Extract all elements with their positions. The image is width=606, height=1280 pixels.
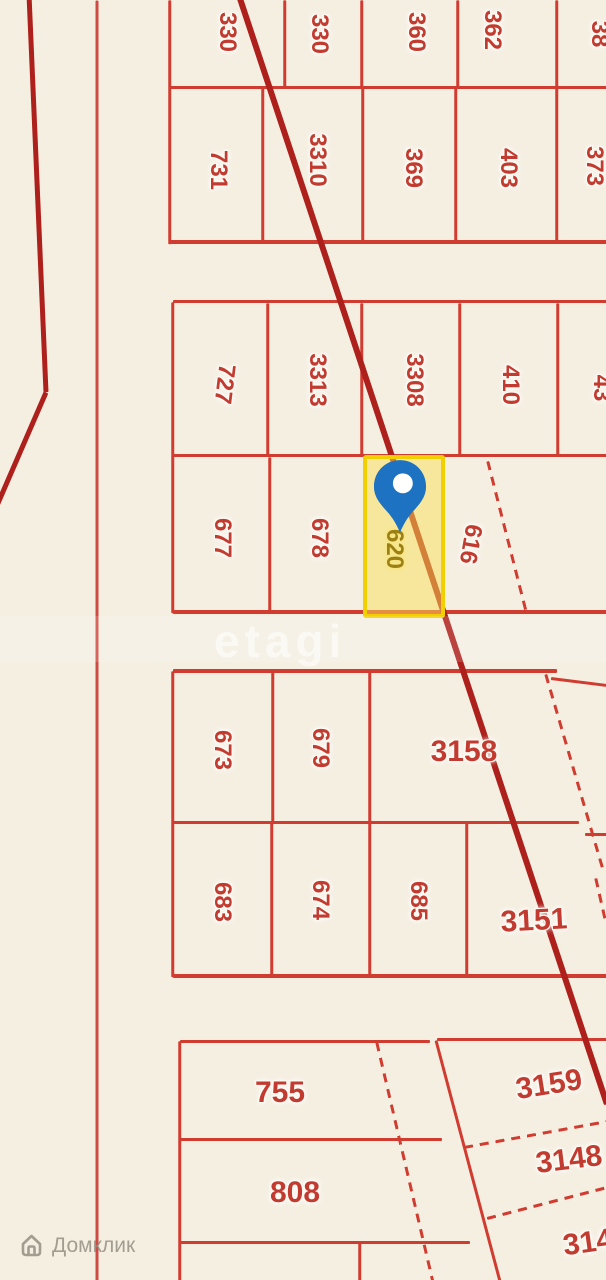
parcel-label-679: 679 xyxy=(306,728,334,768)
parcel-label-38: 38 xyxy=(585,21,606,48)
parcel-boundary-line xyxy=(272,672,275,822)
parcel-label-3158: 3158 xyxy=(431,735,498,769)
parcel-label-673: 673 xyxy=(208,730,236,770)
parcel-label-369: 369 xyxy=(399,148,427,188)
parcel-boundary-line xyxy=(284,0,287,88)
parcel-boundary-line xyxy=(169,0,172,244)
parcel-boundary-line xyxy=(455,88,458,243)
parcel-label-314: 314 xyxy=(561,1223,606,1264)
parcel-boundary-line xyxy=(179,1041,182,1280)
parcel-label-3308: 3308 xyxy=(400,353,428,406)
parcel-boundary-line xyxy=(369,672,372,822)
powerline-left xyxy=(27,0,49,392)
parcel-boundary-line xyxy=(459,303,462,456)
parcel-label-360: 360 xyxy=(402,12,430,52)
parcel-boundary-line xyxy=(369,822,372,976)
parcel-boundary-line xyxy=(362,88,365,243)
parcel-label-43: 43 xyxy=(587,375,606,402)
parcel-label-674: 674 xyxy=(306,880,334,920)
parcel-label-410: 410 xyxy=(496,365,524,405)
cadastral-map[interactable]: 3303303603623873133103694033737273313330… xyxy=(0,0,606,1280)
parcel-boundary-line xyxy=(437,1038,606,1041)
parcel-label-616: 616 xyxy=(453,522,488,566)
parcel-boundary-line xyxy=(172,671,175,977)
parcel-label-685: 685 xyxy=(404,881,432,921)
parcel-boundary-line xyxy=(180,1138,442,1141)
parcel-boundary-dashed xyxy=(595,878,606,923)
parcel-boundary-line xyxy=(173,821,579,824)
parcel-label-683: 683 xyxy=(208,882,236,922)
parcel-boundary-dashed xyxy=(487,1186,606,1219)
parcel-boundary-line xyxy=(267,303,270,456)
parcel-boundary-line xyxy=(180,1040,430,1043)
parcel-label-677: 677 xyxy=(208,518,236,558)
brand-watermark: Домклик xyxy=(18,1232,135,1259)
parcel-boundary-dashed xyxy=(487,461,527,611)
parcel-boundary-line xyxy=(435,1040,502,1280)
parcel-boundary-line xyxy=(556,88,559,243)
parcel-boundary-line xyxy=(556,0,559,88)
parcel-boundary-dashed xyxy=(545,674,605,873)
parcel-boundary-line xyxy=(170,86,606,90)
parcel-boundary-line xyxy=(262,88,265,243)
parcel-label-3310: 3310 xyxy=(303,133,331,186)
parcel-label-731: 731 xyxy=(204,150,232,190)
parcel-boundary-line xyxy=(173,669,557,673)
parcel-boundary-line xyxy=(173,974,606,978)
parcel-label-727: 727 xyxy=(208,362,241,405)
parcel-boundary-line xyxy=(359,1242,362,1280)
house-icon xyxy=(18,1232,45,1259)
parcel-boundary-line xyxy=(180,1241,470,1244)
parcel-label-3148: 3148 xyxy=(534,1139,604,1181)
parcel-boundary-line xyxy=(170,240,606,244)
parcel-boundary-line xyxy=(271,822,274,976)
parcel-boundary-line xyxy=(557,303,560,456)
parcel-label-362: 362 xyxy=(478,10,506,50)
parcel-boundary-line xyxy=(269,457,272,612)
parcel-label-678: 678 xyxy=(305,518,333,558)
parcel-label-3151: 3151 xyxy=(500,902,568,939)
parcel-label-403: 403 xyxy=(494,148,522,188)
parcel-boundary-line xyxy=(466,822,469,976)
brand-watermark-label: Домклик xyxy=(52,1234,135,1258)
parcel-boundary-line xyxy=(173,300,606,304)
parcel-boundary-line xyxy=(172,302,175,613)
parcel-label-808: 808 xyxy=(270,1176,320,1210)
parcel-label-373: 373 xyxy=(580,146,606,186)
powerline-left xyxy=(0,391,48,506)
parcel-label-330: 330 xyxy=(213,12,241,52)
parcel-boundary-line xyxy=(457,0,460,88)
parcel-label-3159: 3159 xyxy=(513,1063,584,1107)
parcel-boundary-line xyxy=(361,0,364,88)
parcel-label-3313: 3313 xyxy=(303,353,331,406)
etagi-watermark: etagi xyxy=(214,614,346,668)
parcel-boundary-line xyxy=(551,677,606,687)
parcel-boundary-dashed xyxy=(376,1042,434,1280)
parcel-label-755: 755 xyxy=(255,1076,305,1110)
location-pin-icon[interactable] xyxy=(373,459,427,537)
parcel-label-330: 330 xyxy=(305,14,333,54)
parcel-boundary-line xyxy=(585,833,606,836)
